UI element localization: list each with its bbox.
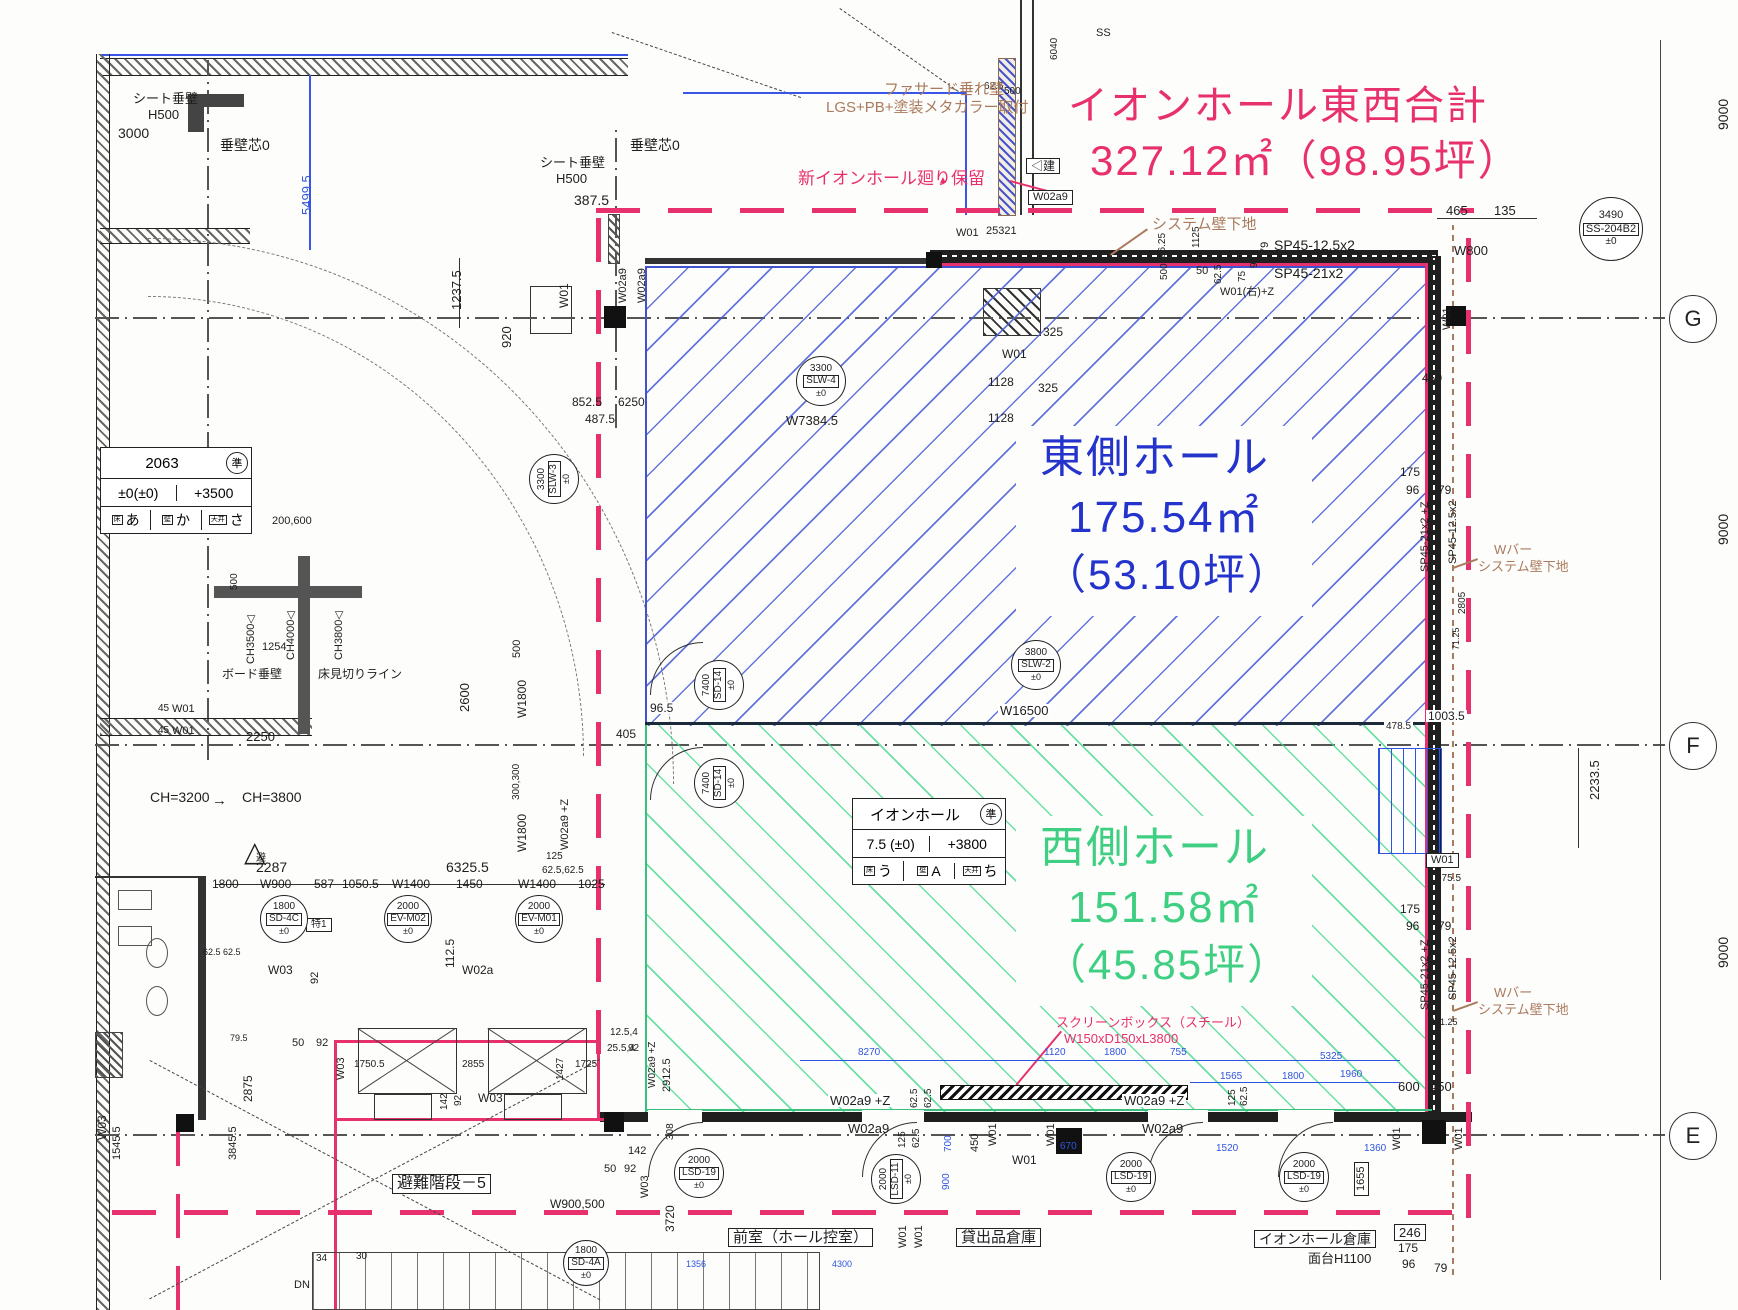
annotation-label: W03: [268, 964, 293, 976]
annotation-label: 450: [970, 1134, 981, 1152]
room-stamp-table: イオンホール準7.5 (±0)+3800床う壁A天井ち: [852, 798, 1006, 885]
annotation-label: 62.5: [1240, 1087, 1250, 1106]
annotation-label: 62.5: [910, 1089, 920, 1108]
west-hall-tsubo: （45.85坪）: [1044, 944, 1291, 986]
annotation-label: W02a9 +Z: [560, 799, 571, 850]
annotation-label: 96: [1250, 257, 1260, 268]
room-tag-circle: 7400SD-14±0: [694, 660, 744, 710]
annotation-label: H500: [556, 172, 587, 185]
annotation-label: 25321: [986, 226, 1017, 237]
annotation-label: W01: [956, 228, 979, 239]
annotation-label: W01: [1442, 307, 1453, 330]
annotation-label: 9000: [1716, 937, 1730, 968]
annotation-label: 500: [230, 573, 240, 590]
annotation-label: 垂壁芯0: [220, 138, 270, 152]
annotation-label: W02a9: [1028, 190, 1073, 205]
annotation-label: W02a9 +Z: [1122, 1094, 1186, 1107]
annotation-label: 1120: [1044, 1048, 1066, 1058]
room-tag-circle: 3490SS-204B2±0: [1579, 197, 1643, 261]
annotation-label: W02a9: [618, 268, 629, 303]
column: [176, 1114, 194, 1132]
dim-line-blue: [309, 75, 311, 250]
annotation-label: 6250: [618, 396, 645, 408]
annotation-label: 6040: [1050, 38, 1060, 60]
annotation-label: 1565: [1220, 1072, 1242, 1082]
annotation-label: W03: [336, 1057, 347, 1080]
annotation-label: 前室（ホール控室）: [728, 1228, 873, 1247]
annotation-label: 避: [256, 854, 266, 864]
annotation-label: W01: [1010, 1154, 1039, 1166]
annotation-label: DN: [294, 1280, 310, 1291]
annotation-label: 1725: [575, 1060, 597, 1070]
annotation-label: 487.5: [585, 413, 615, 425]
annotation-label: 200,600: [272, 516, 312, 527]
annotation-label: 62.5 62.5: [203, 948, 241, 957]
annotation-label: 79.5: [230, 1034, 248, 1043]
annotation-label: 79: [1438, 484, 1451, 496]
annotation-label: 142: [440, 1093, 450, 1110]
annotation-label: W1400: [518, 878, 556, 890]
annotation-label: 75: [1238, 271, 1248, 282]
annotation-label: 975.5: [1436, 874, 1461, 884]
annotation-label: 142: [628, 1146, 646, 1157]
annotation-label: SP45-21x2 +Z: [1420, 501, 1431, 572]
annotation-label: 1450: [456, 878, 483, 890]
room-tag-circle: 7400SD-14±0: [694, 758, 744, 808]
dim-line-blue: [800, 1060, 1400, 1061]
annotation-label: シート垂壁: [133, 92, 198, 105]
title-total-line1: イオンホール東西合計: [1068, 86, 1488, 126]
annotation-label: CH3500◁: [246, 615, 257, 664]
room-tag-circle: 2000LSD-19±0: [1106, 1152, 1156, 1202]
annotation-label: W02a9 +Z: [828, 1094, 892, 1107]
column: [1422, 1120, 1446, 1144]
wall-top-dotted: [932, 255, 1436, 257]
annotation-label: 79: [1438, 920, 1451, 932]
dim-line: [1578, 748, 1579, 848]
annotation-label: 92: [624, 1164, 636, 1175]
annotation-label: 96: [1406, 920, 1419, 932]
annotation-label: W01: [988, 1123, 999, 1146]
annotation-label: W01(右)+Z: [1220, 287, 1274, 298]
annotation-label: 500: [512, 640, 523, 658]
annotation-label: 避難階段－5: [392, 1174, 491, 1194]
annotation-label: SS: [1096, 28, 1111, 39]
annotation-label: 96.25: [1158, 233, 1168, 258]
annotation-label: 96: [1406, 484, 1419, 496]
annotation-label: 垂壁芯0: [630, 138, 680, 152]
stair-grid-blue: [1378, 748, 1442, 854]
annotation-label: SP45-21x2: [1274, 266, 1343, 280]
room-tag-circle: 2000EV-M01±0: [515, 895, 563, 943]
annotation-label: 1800: [1104, 1048, 1126, 1058]
dim-line-right: [1660, 40, 1661, 1280]
room-tag-circle: 3300SLW-4±0: [796, 356, 846, 406]
west-hall-name: 西側ホール: [1040, 826, 1270, 870]
annotation-label: 1360: [1364, 1144, 1386, 1154]
annotation-label: イオンホール倉庫: [1254, 1230, 1376, 1248]
annotation-label: 125: [546, 852, 563, 862]
annotation-label: W02a9: [637, 268, 648, 303]
annotation-label: 300,300: [512, 764, 522, 800]
annotation-label: W150xD150xL3800: [1064, 1032, 1178, 1045]
annotation-label: 45: [158, 726, 169, 736]
annotation-label: 471.25: [1430, 1018, 1458, 1027]
room-tag-circle: 1800SD-4C±0: [260, 895, 308, 943]
dim-line-blue: [1190, 1082, 1400, 1083]
annotation-label: SP45-12.5x2: [1448, 500, 1459, 564]
annotation-label: 112.5: [444, 939, 456, 968]
annotation-label: W02a9 +Z: [648, 1042, 658, 1088]
room-stamp-table: 2063準±0(±0)+3500床あ壁か天井さ: [100, 447, 252, 534]
annotation-label: 852.5: [572, 396, 602, 408]
annotation-label: 50: [604, 1164, 616, 1175]
annotation-label: 62.5: [924, 1089, 934, 1108]
column: [604, 306, 626, 328]
facade-blue-line: [100, 54, 628, 56]
annotation-label: W16500: [998, 704, 1050, 717]
annotation-label: 34: [316, 1254, 327, 1264]
annotation-label: 450: [1422, 372, 1442, 384]
annotation-label: 50: [292, 1038, 304, 1049]
annotation-label: LGS+PB+塗装メタカラー取付: [826, 100, 1029, 115]
boundary-solid: [597, 1040, 600, 1120]
annotation-label: 920: [500, 326, 513, 348]
annotation-label: 1655: [1354, 1162, 1369, 1196]
annotation-label: システム壁下地: [1152, 217, 1257, 232]
room-tag-circle: 2000LSD-19±0: [1279, 1152, 1329, 1202]
annotation-label: 1025: [578, 878, 605, 890]
annotation-label: W02a9: [848, 1122, 889, 1135]
elev-machine: [504, 1094, 562, 1120]
annotation-label: W02a: [462, 964, 493, 976]
wall-right-dotted: [1433, 258, 1435, 1120]
annotation-label: 387.5: [574, 193, 609, 207]
annotation-label: 1356: [686, 1260, 706, 1269]
grid-mark-f: F: [1669, 722, 1717, 770]
annotation-label: 175: [1398, 1242, 1418, 1254]
annotation-label: 79: [1434, 1262, 1447, 1274]
grid-mark-g: G: [1669, 295, 1717, 343]
room-tag-circle: 2000EV-M02±0: [384, 895, 432, 943]
toilet-fixture: [118, 926, 152, 946]
annotation-label: 1520: [1216, 1144, 1238, 1154]
annotation-label: 1800: [1282, 1072, 1304, 1082]
annotation-label: 1237.5: [450, 270, 463, 310]
annotation-label: 2875: [242, 1075, 254, 1102]
annotation-label: 4300: [832, 1260, 852, 1269]
annotation-label: 貸出品倉庫: [956, 1228, 1041, 1247]
annotation-label: システム壁下地: [1478, 1003, 1569, 1016]
roof-cut-line: [612, 32, 801, 98]
annotation-label: 2912.5: [662, 1058, 673, 1092]
annotation-label: 2855: [462, 1060, 484, 1070]
annotation-label: 92: [310, 972, 321, 984]
annotation-label: 3000: [118, 126, 149, 140]
toilet-fixture: [146, 938, 168, 968]
east-hall-name: 東側ホール: [1040, 436, 1270, 480]
annotation-label: W01: [1046, 1123, 1057, 1146]
annotation-label: 1800: [212, 878, 239, 890]
annotation-label: 405: [616, 728, 636, 740]
annotation-label: シート垂壁: [540, 156, 605, 169]
boundary-dash-left: [596, 208, 601, 1054]
wall-top-hall-thin: [645, 258, 932, 264]
annotation-label: W1800: [516, 814, 528, 852]
annotation-label: SP45-12.5x2: [1448, 936, 1459, 1000]
annotation-label: Wバー: [1494, 986, 1532, 999]
boundary-solid-top: [930, 263, 1438, 266]
annotation-label: ▲: [938, 176, 948, 186]
room-tag-circle: 2000LSD-11±0: [871, 1154, 921, 1204]
annotation-label: 特1: [306, 918, 332, 932]
section-line: [1032, 0, 1034, 215]
wall-partition: [298, 556, 310, 734]
annotation-label: W01: [558, 283, 570, 308]
annotation-label: 1960: [1340, 1070, 1362, 1080]
annotation-label: 1427: [556, 1058, 566, 1080]
annotation-label: 30: [356, 1252, 367, 1262]
annotation-label: 92: [316, 1038, 328, 1049]
annotation-label: W03: [640, 1175, 651, 1198]
annotation-label: 1003.5: [1426, 710, 1467, 722]
annotation-label: スクリーンボックス（スチール）: [1056, 1016, 1250, 1029]
annotation-label: 5325: [1320, 1052, 1342, 1062]
annotation-label: 62.5,62.5: [542, 866, 584, 876]
annotation-label: 79: [1260, 242, 1271, 254]
annotation-label: H500: [148, 108, 179, 121]
toilet-fixture: [118, 890, 152, 910]
annotation-label: 2250: [246, 730, 275, 743]
annotation-label: 71.25: [1452, 627, 1461, 650]
annotation-label: 50: [1196, 266, 1208, 277]
dim-line: [1437, 218, 1537, 219]
annotation-label: 125: [1228, 1089, 1238, 1106]
annotation-label: W01: [172, 704, 195, 715]
annotation-label: SP45-12.5x2: [1274, 238, 1355, 252]
annotation-label: 465: [1446, 204, 1468, 217]
annotation-label: W7384.5: [786, 414, 838, 427]
annotation-label: 1254: [262, 642, 286, 653]
annotation-label: W800: [1454, 244, 1488, 257]
annotation-label: 96.5: [648, 702, 675, 714]
annotation-label: 600: [1398, 1080, 1420, 1093]
wall-top-left: [100, 58, 628, 76]
annotation-label: ファサード垂れ壁: [884, 82, 1004, 97]
wall-left-lower: [100, 718, 312, 736]
annotation-label: 2805: [1458, 592, 1468, 614]
annotation-label: W01: [1002, 348, 1027, 360]
annotation-label: CH3800◁: [334, 611, 345, 660]
annotation-label: 9000: [1716, 514, 1730, 545]
annotation-label: 500: [1160, 263, 1170, 280]
annotation-label: W01: [1454, 1127, 1465, 1150]
wall-toilet: [95, 876, 205, 878]
annotation-label: 175: [1400, 903, 1420, 915]
annotation-label: 92: [454, 1095, 464, 1106]
annotation-label: W900: [260, 878, 291, 890]
east-hall-area: 175.54㎡: [1068, 496, 1261, 540]
annotation-label: 96: [1402, 1258, 1415, 1270]
wall-toilet: [198, 876, 206, 1120]
room-tag-circle: 3300SLW-3±0: [529, 454, 579, 504]
annotation-label: システム壁下地: [1478, 560, 1569, 573]
annotation-label: 325: [1038, 382, 1058, 394]
annotation-label: 62.5: [912, 1129, 922, 1148]
annotation-label: 2600: [458, 683, 471, 712]
annotation-label: CH=3800: [242, 790, 302, 804]
annotation-label: 2233.5: [1588, 760, 1601, 800]
annotation-label: 700: [944, 1135, 954, 1152]
annotation-label: ボード垂壁: [222, 668, 282, 680]
annotation-label: 500: [1004, 87, 1021, 97]
annotation-label: 478.5: [1384, 722, 1413, 732]
annotation-label: 308: [666, 1123, 676, 1140]
annotation-label: 125: [898, 1131, 908, 1148]
shaft-hatch: [95, 1032, 123, 1078]
wall-bottom-hall: [600, 1112, 1472, 1122]
annotation-label: 6325.5: [446, 860, 489, 874]
annotation-label: CH=3200: [150, 790, 210, 804]
floor-plan: イオンホール東西合計 327.12㎡（98.95坪） 東側ホール 175.54㎡…: [0, 0, 1738, 1310]
annotation-label: W900,500: [550, 1198, 605, 1210]
boundary-dash-top: [596, 208, 1474, 213]
room-tag-circle: 3800SLW-2±0: [1011, 640, 1061, 690]
annotation-label: 900: [942, 1173, 952, 1190]
annotation-label: W03: [478, 1092, 503, 1104]
column: [926, 252, 942, 268]
annotation-label: 3720: [664, 1205, 676, 1232]
annotation-label: 1050.5: [342, 878, 379, 890]
annotation-label: →: [212, 793, 227, 808]
room-tag-circle: 2000LSD-19±0: [674, 1148, 724, 1198]
annotation-label: 246: [1394, 1224, 1426, 1241]
annotation-label: 325: [1043, 326, 1063, 338]
elev-machine: [374, 1094, 432, 1120]
annotation-label: 新イオンホール廻り保留: [798, 170, 985, 187]
annotation-label: 62.5: [1214, 265, 1224, 284]
annotation-label: W01: [1392, 1127, 1403, 1150]
annotation-label: W1400: [392, 878, 430, 890]
annotation-label: 9000: [1716, 99, 1730, 130]
annotation-label: 135: [1494, 204, 1516, 217]
annotation-label: W01: [172, 726, 195, 737]
annotation-label: 8270: [858, 1048, 880, 1058]
annotation-label: SP45-21x2 +Z: [1420, 939, 1431, 1010]
annotation-label: W01: [1426, 853, 1459, 868]
annotation-label: 92: [628, 1044, 639, 1054]
annotation-label: 1750.5: [354, 1060, 385, 1070]
annotation-label: 床見切りライン: [318, 668, 402, 680]
toilet-fixture: [146, 986, 168, 1016]
annotation-label: 1128: [988, 376, 1014, 388]
annotation-label: W02a9: [1142, 1122, 1183, 1135]
annotation-label: 1128: [988, 412, 1014, 424]
annotation-label: 755: [1170, 1048, 1187, 1058]
annotation-label: 450: [1430, 1080, 1452, 1093]
annotation-label: 面台H1100: [1308, 1252, 1371, 1265]
annotation-label: W01: [914, 1225, 925, 1248]
boundary-dash-right: [1466, 208, 1471, 1218]
annotation-label: Wバー: [1494, 543, 1532, 556]
annotation-label: 670: [1060, 1142, 1077, 1152]
west-hall-area: 151.58㎡: [1068, 886, 1261, 930]
title-total-line2: 327.12㎡（98.95坪）: [1090, 140, 1522, 182]
annotation-label: 5499.5: [300, 175, 313, 215]
east-hall-tsubo: （53.10坪）: [1044, 554, 1291, 596]
column: [604, 1112, 624, 1132]
annotation-label: 1545.5: [112, 1126, 123, 1160]
grid-mark-e: E: [1669, 1112, 1717, 1160]
annotation-label: 175: [1400, 466, 1420, 478]
annotation-label: ◁建: [1026, 158, 1060, 174]
annotation-label: W01: [898, 1225, 909, 1248]
annotation-label: CH4000◁: [286, 611, 297, 660]
annotation-label: 12.5,4: [610, 1028, 638, 1038]
wall-stub-hatch: [608, 214, 620, 264]
annotation-label: W1800: [516, 680, 528, 718]
room-tag-circle: 1800SD-4A±0: [563, 1240, 609, 1286]
annotation-label: W03: [96, 1115, 108, 1140]
annotation-label: 587: [314, 878, 334, 890]
annotation-label: 3845.5: [228, 1126, 239, 1160]
annotation-label: 45: [158, 704, 169, 714]
